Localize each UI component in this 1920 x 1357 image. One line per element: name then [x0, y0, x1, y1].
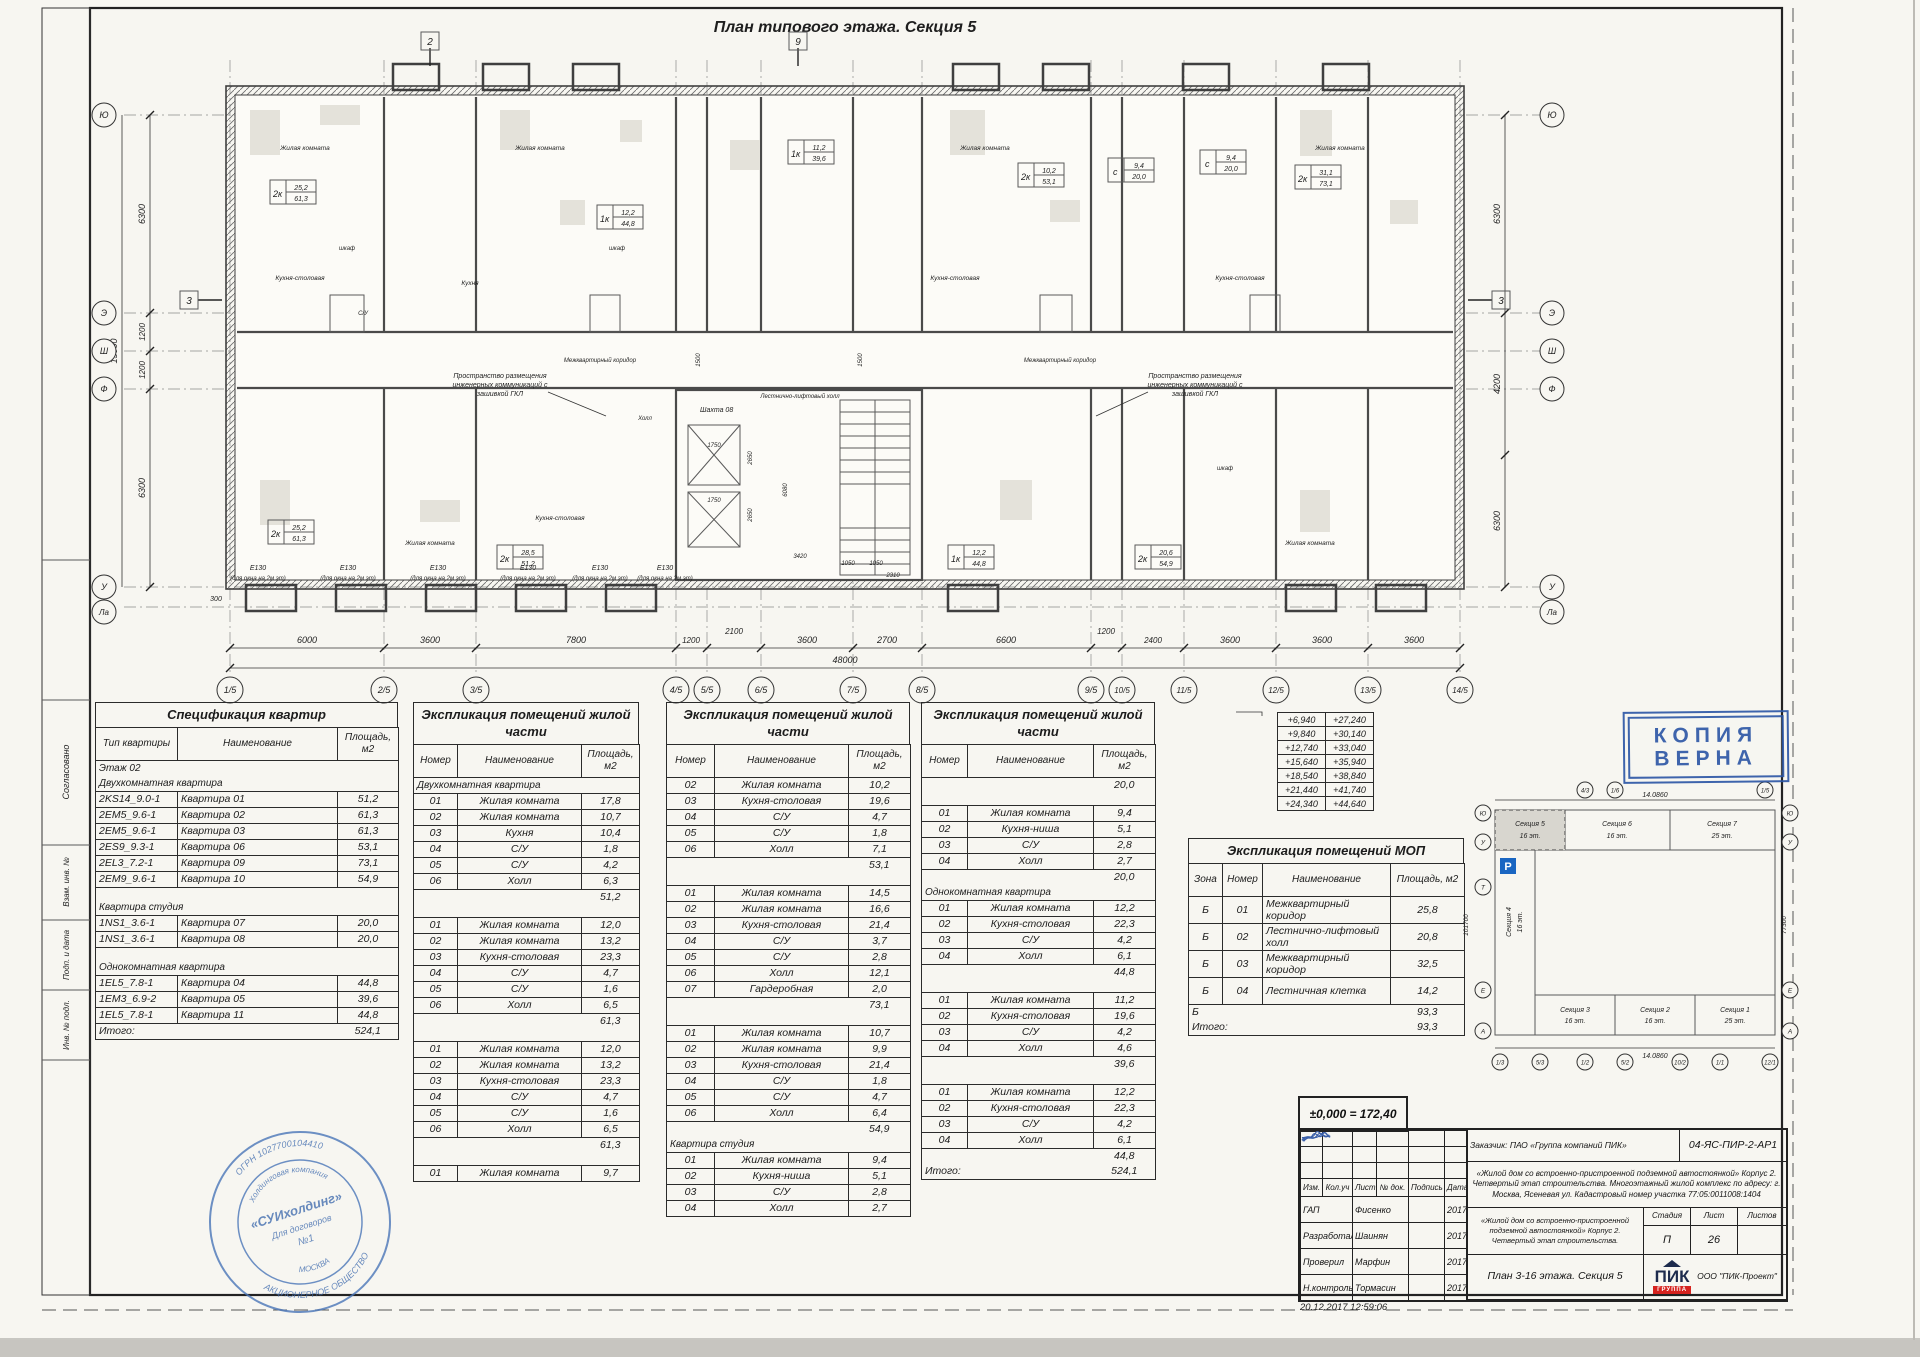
- table-cell: 03: [922, 1024, 968, 1040]
- room-label: Кухня-столовая: [1215, 275, 1265, 282]
- table-cell: 14,5: [849, 885, 911, 901]
- table-cell: 22,3: [1094, 1100, 1156, 1116]
- role-date: 2017: [1445, 1249, 1468, 1275]
- table-cell: Наименование: [968, 744, 1094, 777]
- table-cell: 1NS1_3.6-1: [96, 931, 178, 947]
- core-dim: 1050: [869, 561, 883, 567]
- table-cell: 12,0: [582, 917, 640, 933]
- table-cell: 51,2: [582, 889, 640, 905]
- table-cell: 06: [667, 965, 715, 981]
- table-row: 53,1: [667, 857, 911, 873]
- table-cell: Б: [1189, 1004, 1391, 1020]
- table-row: 39,6: [922, 1056, 1156, 1072]
- svg-text:12/1: 12/1: [1764, 1061, 1776, 1067]
- table-row: [96, 947, 399, 960]
- table-cell: Жилая комната: [458, 933, 582, 949]
- section-mark-9: 9: [795, 37, 801, 48]
- table-cell: Итого:: [922, 1164, 1094, 1180]
- room-label: С/У: [358, 311, 369, 317]
- table-row: Б04Лестничная клетка14,2: [1189, 977, 1465, 1004]
- table-cell: 20,0: [338, 931, 399, 947]
- table-cell: Гардеробная: [715, 981, 849, 997]
- svg-text:2к: 2к: [1137, 554, 1148, 564]
- table-row: Тип квартирыНаименованиеПлощадь, м2: [96, 727, 399, 760]
- table-row: Б01Межквартирный коридор25,8: [1189, 896, 1465, 923]
- keyplan-section: Секция 1: [1720, 1007, 1750, 1014]
- table-row: 51,2: [414, 889, 640, 905]
- table-cell: Жилая комната: [715, 1025, 849, 1041]
- table-row: Двухкомнатная квартира: [96, 776, 399, 792]
- svg-text:2к: 2к: [499, 554, 510, 564]
- svg-text:44,8: 44,8: [621, 221, 635, 228]
- svg-text:с: с: [1205, 159, 1210, 169]
- table-cell: 53,1: [849, 857, 911, 873]
- table-cell: 4,7: [849, 809, 911, 825]
- table-cell: 9,7: [582, 1165, 640, 1181]
- svg-text:У: У: [1787, 840, 1793, 847]
- table-cell: Кухня-столовая: [968, 916, 1094, 932]
- table-cell: 05: [667, 949, 715, 965]
- table-cell: 44,8: [338, 975, 399, 991]
- dim-label: 6000: [297, 635, 317, 645]
- table-row: 44,8: [922, 964, 1156, 980]
- svg-text:4/5: 4/5: [670, 685, 684, 695]
- svg-text:6300: 6300: [137, 204, 147, 224]
- svg-text:2к: 2к: [1297, 174, 1308, 184]
- room-label: шкаф: [1217, 466, 1233, 472]
- svg-text:1к: 1к: [791, 149, 801, 159]
- table-row: [667, 873, 911, 886]
- table-cell: С/У: [458, 841, 582, 857]
- table-row: 54,9: [667, 1121, 911, 1137]
- table-cell: 61,3: [582, 1013, 640, 1029]
- table-cell: 6,5: [582, 1121, 640, 1137]
- table-cell: Наименование: [178, 727, 338, 760]
- table-cell: 06: [414, 873, 458, 889]
- window-note: (для окна на 2м эт): [410, 576, 465, 582]
- svg-text:2/5: 2/5: [377, 685, 392, 695]
- frame-label-soglasovano: Согласовано: [61, 745, 71, 800]
- table-row: 2EM9_9.6-1Квартира 1054,9: [96, 871, 399, 887]
- table-row: 04Холл2,7: [667, 1200, 911, 1216]
- table-cell: Кухня-столовая: [968, 1008, 1094, 1024]
- doc-number-cell: 04-ЯС-ПИР-2-АР1: [1679, 1129, 1787, 1162]
- table-row: +21,440+41,740: [1278, 783, 1374, 797]
- svg-text:А: А: [1480, 1029, 1485, 1036]
- table-cell: Холл: [968, 1040, 1094, 1056]
- table-cell: Лестничная клетка: [1263, 977, 1391, 1004]
- keyplan-section: Секция 3: [1560, 1007, 1590, 1014]
- sheets-value: [1737, 1225, 1787, 1255]
- note-line: инженерных коммуникаций с: [1148, 381, 1243, 389]
- table-cell: [922, 777, 1094, 793]
- table-row: [922, 793, 1156, 806]
- table-cell: Итого:: [1189, 1020, 1391, 1036]
- core-dim: 1500: [858, 353, 864, 367]
- table-cell: 7,1: [849, 841, 911, 857]
- table-cell: Холл: [715, 965, 849, 981]
- print-timestamp: 20.12.2017 12:59:06: [1300, 1302, 1387, 1313]
- table-cell: +44,640: [1326, 797, 1374, 811]
- svg-text:51,2: 51,2: [521, 561, 535, 568]
- table-cell: 2,8: [849, 949, 911, 965]
- table-cell: 12,1: [849, 965, 911, 981]
- table-cell: 01: [922, 992, 968, 1008]
- table-cell: 02: [922, 821, 968, 837]
- keyplan-section: Секция 6: [1602, 821, 1632, 828]
- dim-label: 3600: [1312, 635, 1332, 645]
- table-row: 02Жилая комната10,2: [667, 777, 911, 793]
- table-cell: [414, 889, 582, 905]
- sheet-name-cell: План 3-16 этажа. Секция 5: [1466, 1254, 1644, 1300]
- table-row: [667, 1013, 911, 1026]
- table-cell: 05: [667, 825, 715, 841]
- drawing-sheet: Согласовано Взам. инв. № Подп. и дата Ин…: [0, 0, 1920, 1357]
- table-cell: Квартира студия: [667, 1137, 911, 1153]
- window-note: (для окна на 2м эт): [320, 576, 375, 582]
- table-row: 01Жилая комната17,8: [414, 793, 640, 809]
- window-mark: Е130: [592, 565, 608, 572]
- table-cell: 03: [922, 1116, 968, 1132]
- table-cell: 4,7: [582, 1089, 640, 1105]
- table-row: Итого:524,1: [922, 1164, 1156, 1180]
- table-cell: 1EL5_7.8-1: [96, 975, 178, 991]
- table-row: 04С/У1,8: [667, 1073, 911, 1089]
- table-row: Итого:93,3: [1189, 1020, 1465, 1036]
- shaft-label: Шахта 08: [700, 407, 733, 414]
- stamp-line: КОПИЯ: [1654, 723, 1759, 747]
- table-cell: 4,2: [1094, 1024, 1156, 1040]
- customer-cell: Заказчик: ПАО «Группа компаний ПИК»: [1466, 1129, 1680, 1162]
- tb-col: Дата: [1445, 1179, 1468, 1197]
- table-row: +9,840+30,140: [1278, 727, 1374, 741]
- table-cell: Кухня-ниша: [715, 1168, 849, 1184]
- table-cell: Номер: [414, 744, 458, 777]
- dim-label: 2400: [1143, 636, 1162, 645]
- table-row: 04С/У1,8: [414, 841, 640, 857]
- table-row: Б02Лестнично-лифтовый холл20,8: [1189, 923, 1465, 950]
- table-cell: 4,2: [1094, 932, 1156, 948]
- table-cell: 02: [922, 1008, 968, 1024]
- table-cell: +6,940: [1278, 713, 1326, 727]
- table-row: 06Холл6,5: [414, 1121, 640, 1137]
- stair-hall-label: Лестнично-лифтовый холл: [759, 393, 840, 400]
- table-cell: [667, 1013, 911, 1026]
- note-line: зашивкой ГКЛ: [476, 390, 523, 398]
- floor-plan: План типового этажа. Секция 5: [92, 19, 1564, 703]
- table-cell: 04: [414, 1089, 458, 1105]
- table-cell: 61,3: [582, 1137, 640, 1153]
- table-row: [96, 887, 399, 900]
- table-cell: 01: [414, 1165, 458, 1181]
- table-cell: 02: [667, 777, 715, 793]
- table-cell: 02: [414, 933, 458, 949]
- table-cell: Жилая комната: [715, 777, 849, 793]
- note-line: зашивкой ГКЛ: [1171, 390, 1218, 398]
- table-cell: Жилая комната: [458, 793, 582, 809]
- keyplan-section: Секция 5: [1515, 821, 1545, 828]
- role-label: Проверил: [1301, 1249, 1353, 1275]
- room-label: Кухня-столовая: [275, 275, 325, 282]
- svg-text:7/5: 7/5: [847, 685, 861, 695]
- svg-text:2к: 2к: [270, 529, 281, 539]
- expl-table-3: Экспликация помещений жилой части НомерН…: [921, 702, 1155, 1180]
- table-cell: 10,4: [582, 825, 640, 841]
- table-cell: Холл: [715, 841, 849, 857]
- svg-text:Е: Е: [1788, 988, 1793, 995]
- table-row: Этаж 02: [96, 760, 399, 776]
- svg-text:1/1: 1/1: [1716, 1061, 1724, 1067]
- table-row: [922, 1072, 1156, 1085]
- table-cell: 13,2: [582, 1057, 640, 1073]
- table-cell: Б: [1189, 950, 1223, 977]
- table-cell: 01: [667, 1025, 715, 1041]
- table-row: [414, 1153, 640, 1166]
- svg-text:Ла: Ла: [98, 608, 109, 617]
- svg-text:11/5: 11/5: [1177, 686, 1193, 695]
- table-cell: 03: [414, 825, 458, 841]
- room-label: шкаф: [609, 246, 625, 252]
- table-cell: С/У: [458, 1089, 582, 1105]
- table-cell: 4,2: [582, 857, 640, 873]
- table-cell: +12,740: [1278, 741, 1326, 755]
- keyplan-section: 16 эт.: [1645, 1018, 1666, 1025]
- svg-text:Э: Э: [101, 308, 107, 318]
- table-cell: +41,740: [1326, 783, 1374, 797]
- table-cell: С/У: [968, 837, 1094, 853]
- copy-verna-stamp: КОПИЯ ВЕРНА: [1628, 715, 1785, 779]
- table-cell: 12,2: [1094, 900, 1156, 916]
- table-row: 02Кухня-ниша5,1: [667, 1168, 911, 1184]
- table-cell: Жилая комната: [968, 992, 1094, 1008]
- plan-title: План типового этажа. Секция 5: [714, 19, 978, 36]
- table-cell: Наименование: [1263, 863, 1391, 896]
- table-row: Итого:524,1: [96, 1023, 399, 1039]
- table-row: 2EL3_7.2-1Квартира 0973,1: [96, 855, 399, 871]
- company-name: ООО "ПИК-Проект": [1697, 1271, 1777, 1282]
- section-mark-3: 3: [186, 296, 192, 307]
- table-cell: 04: [922, 1132, 968, 1148]
- table-cell: Холл: [968, 853, 1094, 869]
- keyplan-section: Секция 2: [1640, 1007, 1670, 1014]
- table-row: 2EM5_9.6-1Квартира 0361,3: [96, 823, 399, 839]
- table-cell: Б: [1189, 923, 1223, 950]
- table-cell: 1,8: [582, 841, 640, 857]
- table-cell: 53,1: [338, 839, 399, 855]
- table-cell: 93,3: [1391, 1020, 1465, 1036]
- svg-text:5/5: 5/5: [701, 685, 715, 695]
- table-cell: 22,3: [1094, 916, 1156, 932]
- svg-text:54,9: 54,9: [1159, 561, 1173, 568]
- table-cell: 02: [414, 809, 458, 825]
- dim-label: 2700: [876, 635, 897, 645]
- table-row: 06Холл12,1: [667, 965, 911, 981]
- table-cell: [96, 947, 399, 960]
- dim-total: 48000: [832, 655, 857, 665]
- table-cell: +21,440: [1278, 783, 1326, 797]
- room-label: Жилая комната: [1314, 145, 1365, 152]
- table-row: 61,3: [414, 1013, 640, 1029]
- sheet-value: 26: [1690, 1225, 1738, 1255]
- table-cell: [667, 873, 911, 886]
- table-row: 01Жилая комната14,5: [667, 885, 911, 901]
- table-cell: Площадь, м2: [1094, 744, 1156, 777]
- svg-text:Ю: Ю: [99, 110, 108, 120]
- table-cell: 20,0: [338, 915, 399, 931]
- table-cell: 20,0: [1094, 869, 1156, 885]
- table-row: +12,740+33,040: [1278, 741, 1374, 755]
- table-cell: С/У: [458, 857, 582, 873]
- table-row: 07Гардеробная2,0: [667, 981, 911, 997]
- table-row: 05С/У4,2: [414, 857, 640, 873]
- table-cell: 04: [667, 809, 715, 825]
- table-cell: Жилая комната: [968, 1084, 1094, 1100]
- table-cell: [414, 1029, 640, 1042]
- table-cell: [414, 1137, 582, 1153]
- window-note: (для окна на 2м эт): [637, 576, 692, 582]
- svg-text:Ф: Ф: [100, 384, 107, 394]
- table-row: Квартира студия: [667, 1137, 911, 1153]
- tb-col: Лист: [1353, 1179, 1377, 1197]
- svg-text:10/5: 10/5: [1114, 686, 1130, 695]
- table-cell: Кухня-столовая: [715, 1057, 849, 1073]
- table-row: Б03Межквартирный коридор32,5: [1189, 950, 1465, 977]
- table-row: 03Кухня-столовая19,6: [667, 793, 911, 809]
- svg-text:61,3: 61,3: [292, 536, 306, 543]
- table-row: 1NS1_3.6-1Квартира 0820,0: [96, 931, 399, 947]
- table-cell: 02: [922, 916, 968, 932]
- room-label: Кухня: [461, 280, 479, 287]
- svg-text:6300: 6300: [1492, 511, 1502, 531]
- table-cell: Квартира 11: [178, 1007, 338, 1023]
- table-cell: 1EM3_6.9-2: [96, 991, 178, 1007]
- table-cell: Жилая комната: [715, 1152, 849, 1168]
- svg-text:Э: Э: [1549, 308, 1555, 318]
- table-row: Квартира студия: [96, 900, 399, 916]
- table-cell: 6,5: [582, 997, 640, 1013]
- table-cell: 11,2: [1094, 992, 1156, 1008]
- table-row: Б93,3: [1189, 1004, 1465, 1020]
- table-cell: 05: [414, 1105, 458, 1121]
- window-note: (для окна на 2м эт): [230, 576, 285, 582]
- table-row: 1EL5_7.8-1Квартира 0444,8: [96, 975, 399, 991]
- table-row: 1NS1_3.6-1Квартира 0720,0: [96, 915, 399, 931]
- table-cell: 9,9: [849, 1041, 911, 1057]
- table-cell: С/У: [715, 1073, 849, 1089]
- note-line: Пространство размещения: [1148, 373, 1242, 380]
- dim-offset: 300: [210, 596, 222, 603]
- table-cell: 01: [414, 917, 458, 933]
- svg-text:39,6: 39,6: [812, 156, 826, 163]
- table-row: 02Кухня-столовая22,3: [922, 1100, 1156, 1116]
- table-row: 01Жилая комната11,2: [922, 992, 1156, 1008]
- table-cell: 2,7: [1094, 853, 1156, 869]
- table-row: 01Жилая комната12,0: [414, 917, 640, 933]
- table-row: 01Жилая комната9,7: [414, 1165, 640, 1181]
- table-cell: 10,2: [849, 777, 911, 793]
- svg-text:14/5: 14/5: [1452, 686, 1468, 695]
- svg-text:13/5: 13/5: [1360, 686, 1376, 695]
- role-name: Шаинян: [1353, 1223, 1409, 1249]
- table-cell: 20,8: [1391, 923, 1465, 950]
- table-cell: 01: [1223, 896, 1263, 923]
- table-cell: 03: [922, 837, 968, 853]
- table-cell: +33,040: [1326, 741, 1374, 755]
- expl-table-2: Экспликация помещений жилой части НомерН…: [666, 702, 910, 1217]
- sheets-header: Листов: [1737, 1207, 1787, 1226]
- table-cell: 21,4: [849, 917, 911, 933]
- table-cell: 524,1: [1094, 1164, 1156, 1180]
- table-cell: Кухня-столовая: [458, 1073, 582, 1089]
- table-cell: 05: [414, 981, 458, 997]
- table-row: 03С/У4,2: [922, 1024, 1156, 1040]
- table-row: 05С/У1,6: [414, 1105, 640, 1121]
- table-cell: 23,3: [582, 949, 640, 965]
- svg-text:Ю: Ю: [1787, 811, 1794, 818]
- table-title: Экспликация помещений жилой части: [666, 702, 910, 744]
- svg-text:9,4: 9,4: [1226, 155, 1236, 162]
- window-note: (для окна на 2м эт): [572, 576, 627, 582]
- table-cell: Квартира 05: [178, 991, 338, 1007]
- table-cell: Номер: [1223, 863, 1263, 896]
- svg-text:5/3: 5/3: [1536, 1061, 1545, 1067]
- table-row: Однокомнатная квартира: [922, 885, 1156, 901]
- table-cell: Жилая комната: [458, 1165, 582, 1181]
- mop-table: Экспликация помещений МОП ЗонаНомерНаиме…: [1188, 838, 1464, 1036]
- svg-text:Е: Е: [1481, 988, 1486, 995]
- svg-text:Ш: Ш: [100, 346, 109, 356]
- table-cell: 16,6: [849, 901, 911, 917]
- keyplan-dim: 77300: [1781, 916, 1788, 934]
- svg-text:1к: 1к: [951, 554, 961, 564]
- table-row: [414, 905, 640, 918]
- table-cell: [922, 793, 1156, 806]
- table-cell: Наименование: [458, 744, 582, 777]
- table-cell: 54,9: [849, 1121, 911, 1137]
- table-cell: С/У: [715, 825, 849, 841]
- elevation-marks-table: +6,940+27,240+9,840+30,140+12,740+33,040…: [1277, 712, 1373, 811]
- title-block: Изм. Кол.уч Лист № док. Подпись Дата ГАП…: [1298, 1128, 1788, 1302]
- table-cell: С/У: [715, 949, 849, 965]
- table-row: 02Кухня-ниша5,1: [922, 821, 1156, 837]
- table-cell: Квартира 10: [178, 871, 338, 887]
- table-cell: +35,940: [1326, 755, 1374, 769]
- core-dim: 3420: [793, 554, 807, 560]
- table-title: Экспликация помещений жилой части: [413, 702, 639, 744]
- svg-text:3/5: 3/5: [470, 685, 484, 695]
- table-cell: 1,8: [849, 1073, 911, 1089]
- keyplan-section: Секция 7: [1707, 821, 1738, 828]
- table-cell: Квартира 06: [178, 839, 338, 855]
- room-label: Жилая комната: [279, 145, 330, 152]
- zero-elevation-box: ±0,000 = 172,40: [1298, 1096, 1408, 1132]
- table-cell: С/У: [715, 933, 849, 949]
- table-row: 1EM3_6.9-2Квартира 0539,6: [96, 991, 399, 1007]
- table-cell: Площадь, м2: [849, 744, 911, 777]
- svg-text:1/3: 1/3: [1496, 1061, 1505, 1067]
- svg-text:1200: 1200: [138, 323, 147, 341]
- table-cell: 03: [667, 1184, 715, 1200]
- table-row: 2EM5_9.6-1Квартира 0261,3: [96, 807, 399, 823]
- note-line: Пространство размещения: [453, 373, 547, 380]
- room-label: Жилая комната: [404, 540, 455, 547]
- table-cell: 73,1: [849, 997, 911, 1013]
- table-cell: С/У: [458, 965, 582, 981]
- table-cell: 14,2: [1391, 977, 1465, 1004]
- table-row: [414, 1029, 640, 1042]
- tb-col: Изм.: [1301, 1179, 1323, 1197]
- table-cell: Двухкомнатная квартира: [414, 777, 640, 793]
